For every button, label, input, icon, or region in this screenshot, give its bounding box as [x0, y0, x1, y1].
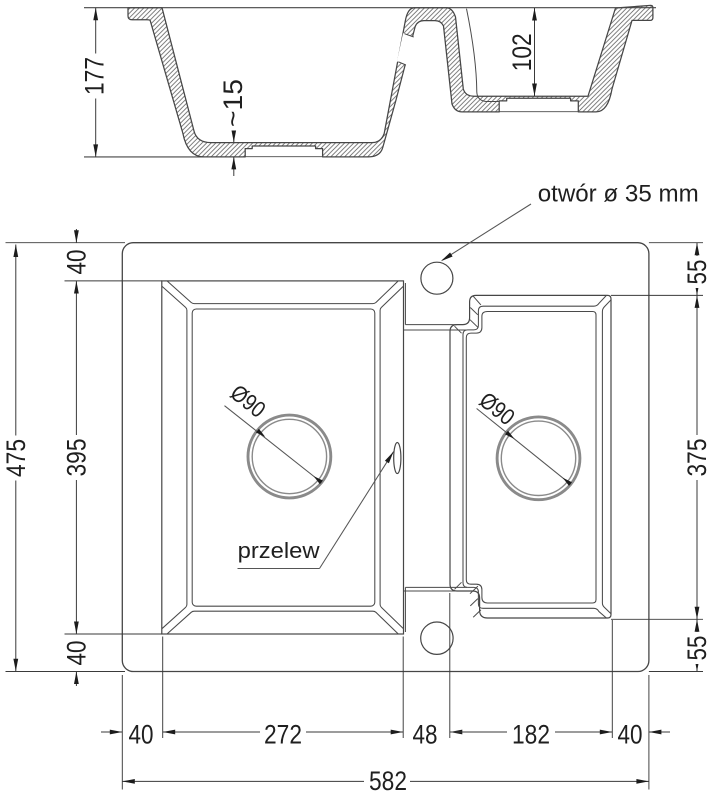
svg-text:102: 102 — [507, 33, 537, 71]
svg-text:395: 395 — [61, 439, 91, 477]
svg-text:475: 475 — [1, 439, 31, 477]
svg-text:272: 272 — [264, 720, 302, 750]
svg-text:582: 582 — [369, 766, 407, 796]
svg-text:40: 40 — [61, 250, 91, 275]
svg-text:48: 48 — [413, 720, 438, 750]
svg-text:40: 40 — [61, 641, 91, 666]
svg-text:~15: ~15 — [218, 79, 248, 127]
svg-text:przelew: przelew — [238, 538, 321, 563]
svg-text:40: 40 — [129, 720, 154, 750]
svg-text:375: 375 — [682, 439, 712, 477]
svg-text:177: 177 — [80, 57, 110, 95]
svg-text:182: 182 — [512, 720, 550, 750]
svg-text:55: 55 — [682, 260, 712, 285]
svg-text:otwór ø 35 mm: otwór ø 35 mm — [538, 181, 699, 208]
svg-text:40: 40 — [618, 720, 643, 750]
svg-text:55: 55 — [682, 636, 712, 661]
